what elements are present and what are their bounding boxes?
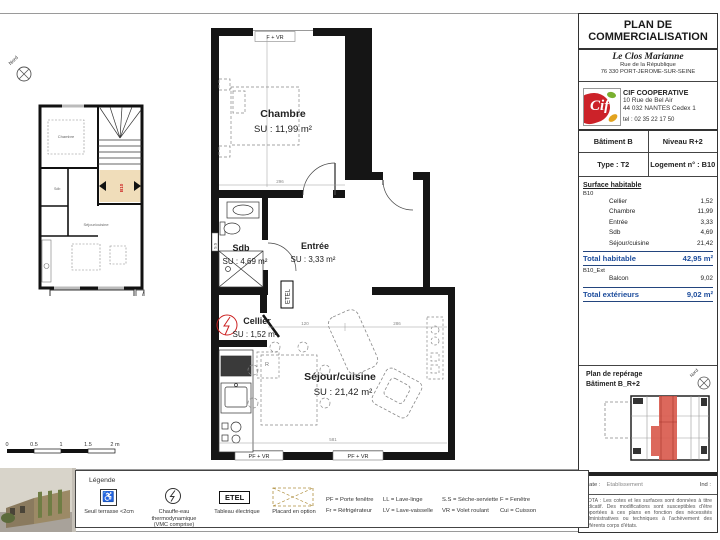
etel-label: ETEL bbox=[286, 288, 292, 304]
ind-label: Ind : bbox=[700, 482, 711, 488]
scale-0: 0 bbox=[5, 442, 8, 448]
abbr-entry: LL = Lave-linge bbox=[383, 495, 433, 506]
table-row: Entrée 3,33 bbox=[583, 218, 713, 229]
fridge: R bbox=[257, 352, 279, 378]
mini-sejour-label: Séjour/cuisine bbox=[83, 222, 109, 227]
abbr-entry: VR = Volet roulant bbox=[442, 506, 498, 517]
dim-sejour-w: 581 bbox=[329, 437, 337, 442]
key-plan-subtitle: Bâtiment B_R+2 bbox=[586, 381, 640, 388]
abbr-entry: LV = Lave-vaisselle bbox=[383, 506, 433, 517]
key-plan-title: Plan de repérage bbox=[586, 371, 642, 378]
etel-legend-icon: ETEL bbox=[219, 491, 250, 504]
sejour-label: Séjour/cuisine bbox=[304, 371, 376, 383]
cellier-label: Cellier bbox=[243, 316, 271, 326]
mini-chambre-label: Chambre bbox=[58, 134, 75, 139]
company-address2: 44 032 NANTES Cedex 1 bbox=[623, 105, 696, 112]
company-name: CIF COOPERATIVE bbox=[623, 88, 688, 97]
cif-logo: Cif bbox=[583, 88, 621, 126]
main-floor-plan: F + VR PF + VR PF + VR bbox=[205, 25, 455, 465]
ext-total-label: Total extérieurs bbox=[583, 290, 639, 299]
mini-building: B10 Chambre Sdb Séjour/cuisine Balcon bbox=[40, 105, 144, 297]
row-label: Sdb bbox=[609, 228, 620, 239]
abbr-entry: Cui = Cuisson bbox=[500, 506, 536, 517]
row-label: Chambre bbox=[609, 207, 635, 218]
legend-item-label: Placard en option bbox=[264, 509, 324, 516]
overview-mini-plan: Nord bbox=[2, 46, 162, 296]
chambre-su: SU : 11,99 m² bbox=[254, 124, 312, 135]
table-row: Séjour/cuisine 21,42 bbox=[583, 239, 713, 250]
total-label: Total habitable bbox=[583, 254, 636, 263]
cellier-su: SU : 1,52 m² bbox=[233, 330, 278, 339]
dining-table bbox=[248, 342, 330, 425]
key-plan-drawing bbox=[603, 392, 713, 470]
chambre-label: Chambre bbox=[260, 108, 306, 120]
legend-line: thermodynamique bbox=[138, 516, 210, 523]
date-row: Date : Etablissement Ind : bbox=[579, 474, 717, 495]
legend-box: Légende ♿ Seuil terrasse <2cm Chauffe-ea… bbox=[75, 470, 589, 528]
company-tel: tel : 02 35 22 17 50 bbox=[623, 117, 674, 123]
row-label: Cellier bbox=[609, 197, 627, 208]
scale-05: 0.5 bbox=[30, 442, 38, 448]
table-row: Balcon 9,02 bbox=[583, 274, 713, 285]
legend-abbr-col3: S.S = Sèche-serviette VR = Volet roulant bbox=[442, 495, 498, 517]
fridge-label: R bbox=[265, 362, 269, 368]
row-value: 1,52 bbox=[701, 197, 713, 208]
legend-item-label: Seuil terrasse <2cm bbox=[78, 509, 140, 516]
type-cell: Type : T2 bbox=[579, 153, 649, 176]
site-photo bbox=[0, 468, 76, 532]
sofa-group bbox=[326, 307, 424, 420]
placard-legend-icon bbox=[272, 487, 314, 507]
row-value: 4,69 bbox=[701, 228, 713, 239]
legend-item-label: Tableau électrique bbox=[206, 509, 268, 516]
row-value: 9,02 bbox=[701, 274, 713, 285]
window-br-label: PF + VR bbox=[348, 454, 369, 460]
ext-total-value: 9,02 m² bbox=[687, 290, 713, 299]
window-top-label: F + VR bbox=[266, 35, 283, 41]
table-row: Sdb 4,69 bbox=[583, 228, 713, 239]
row-value: 3,33 bbox=[701, 218, 713, 229]
building-level-row: Bâtiment B Niveau R+2 bbox=[579, 131, 717, 153]
unit-cell: Logement n° : B10 bbox=[649, 153, 718, 176]
window-bottom-right: PF + VR bbox=[333, 450, 383, 460]
row-label: Entrée bbox=[609, 218, 628, 229]
table-row: Chambre 11,99 bbox=[583, 207, 713, 218]
legend-line: (VMC comprise) bbox=[138, 522, 210, 529]
legend-abbr-col1: PF = Porte fenêtre Fr = Réfrigérateur bbox=[326, 495, 374, 517]
project-name: Le Clos Marianne bbox=[579, 52, 717, 62]
company-address1: 10 Rue de Bel Air bbox=[623, 97, 673, 104]
level-cell: Niveau R+2 bbox=[649, 131, 718, 152]
kitchen-right-unit bbox=[427, 317, 443, 379]
sheet-lower-edge bbox=[0, 531, 590, 532]
key-plan-north-label: Nord bbox=[689, 368, 700, 378]
north-label: Nord bbox=[8, 55, 20, 67]
abbr-entry: Fr = Réfrigérateur bbox=[326, 506, 374, 517]
nota-text: NOTA : Les cotes et les surfaces sont do… bbox=[579, 495, 717, 532]
window-top: F + VR bbox=[253, 28, 313, 42]
key-plan-section: Plan de repérage Bâtiment B_R+2 Nord bbox=[579, 366, 717, 474]
etel-box: ETEL bbox=[281, 281, 293, 308]
abbr-entry: F = Fenêtre bbox=[500, 495, 536, 506]
water-heater-legend-icon bbox=[164, 487, 182, 505]
entree-su: SU : 3,33 m² bbox=[291, 255, 336, 264]
row-value: 21,42 bbox=[697, 239, 713, 250]
sdb-su: SU : 4,69 m² bbox=[223, 257, 268, 266]
dim-sejour-a: 120 bbox=[301, 321, 309, 326]
plan-sheet: Nord bbox=[0, 0, 720, 540]
company-info: Cif CIF COOPERATIVE 10 Rue de Bel Air 44… bbox=[579, 82, 717, 131]
project-address2: 76 330 PORT-JEROME-SUR-SEINE bbox=[579, 69, 717, 76]
entree-label: Entrée bbox=[301, 241, 329, 251]
towel-dryer: S.S bbox=[212, 233, 218, 251]
legend-item-label: Chauffe-eau thermodynamique (VMC compris… bbox=[138, 509, 210, 529]
total-value: 42,95 m² bbox=[683, 254, 713, 263]
unit-tag: B10 bbox=[119, 183, 124, 192]
scale-bar: 0 0.5 1 1.5 2 m bbox=[2, 438, 132, 460]
table-row: Cellier 1,52 bbox=[583, 197, 713, 208]
towel-dryer-label: S.S bbox=[214, 242, 218, 249]
legend-title: Légende bbox=[89, 477, 115, 484]
sdb-label: Sdb bbox=[233, 243, 251, 253]
project-info: Le Clos Marianne Rue de la République 76… bbox=[579, 50, 717, 82]
row-label: Balcon bbox=[609, 274, 629, 285]
abbr-entry: S.S = Sèche-serviette bbox=[442, 495, 498, 506]
sejour-su: SU : 21,42 m² bbox=[314, 387, 373, 398]
total-habitable-row: Total habitable 42,95 m² bbox=[583, 251, 713, 266]
scale-15: 1.5 bbox=[84, 442, 92, 448]
kitchen-counter bbox=[219, 350, 253, 452]
legend-abbr-col4: F = Fenêtre Cui = Cuisson bbox=[500, 495, 536, 517]
total-exterieurs-row: Total extérieurs 9,02 m² bbox=[583, 287, 713, 302]
cif-logo-text: Cif bbox=[590, 98, 609, 115]
key-plan-north-icon: Nord bbox=[689, 368, 715, 392]
row-label: Séjour/cuisine bbox=[609, 239, 649, 250]
wheelchair-icon: ♿ bbox=[100, 489, 117, 506]
surface-table-heading: Surface habitable bbox=[583, 182, 713, 189]
row-value: 11,99 bbox=[697, 207, 713, 218]
project-address1: Rue de la République bbox=[579, 62, 717, 69]
mini-sdb-label: Sdb bbox=[54, 187, 60, 191]
surface-table: Surface habitable B10 Cellier 1,52 Chamb… bbox=[579, 177, 717, 366]
title-block: PLAN DE COMMERCIALISATION Le Clos Marian… bbox=[578, 13, 718, 533]
abbr-entry: PF = Porte fenêtre bbox=[326, 495, 374, 506]
type-unit-row: Type : T2 Logement n° : B10 bbox=[579, 153, 717, 177]
dim-sejour-b: 286 bbox=[393, 321, 401, 326]
building-cell: Bâtiment B bbox=[579, 131, 649, 152]
scale-1: 1 bbox=[59, 442, 62, 448]
mini-balcony: Balcon SU : 9,02 m² bbox=[50, 290, 144, 296]
landing-highlight: B10 bbox=[99, 170, 141, 202]
sheet-title-line1: PLAN DE bbox=[588, 19, 708, 31]
dim-chambre: 296 bbox=[276, 179, 284, 184]
legend-line: Chauffe-eau bbox=[138, 509, 210, 516]
sheet-title-line2: COMMERCIALISATION bbox=[588, 31, 708, 43]
etablissement-label: Etablissement bbox=[606, 482, 642, 488]
legend-abbr-col2: LL = Lave-linge LV = Lave-vaisselle bbox=[383, 495, 433, 517]
window-bl-label: PF + VR bbox=[249, 454, 270, 460]
scale-2m: 2 m bbox=[110, 442, 120, 448]
north-compass-icon: Nord bbox=[8, 55, 31, 81]
sheet-title: PLAN DE COMMERCIALISATION bbox=[579, 14, 717, 50]
